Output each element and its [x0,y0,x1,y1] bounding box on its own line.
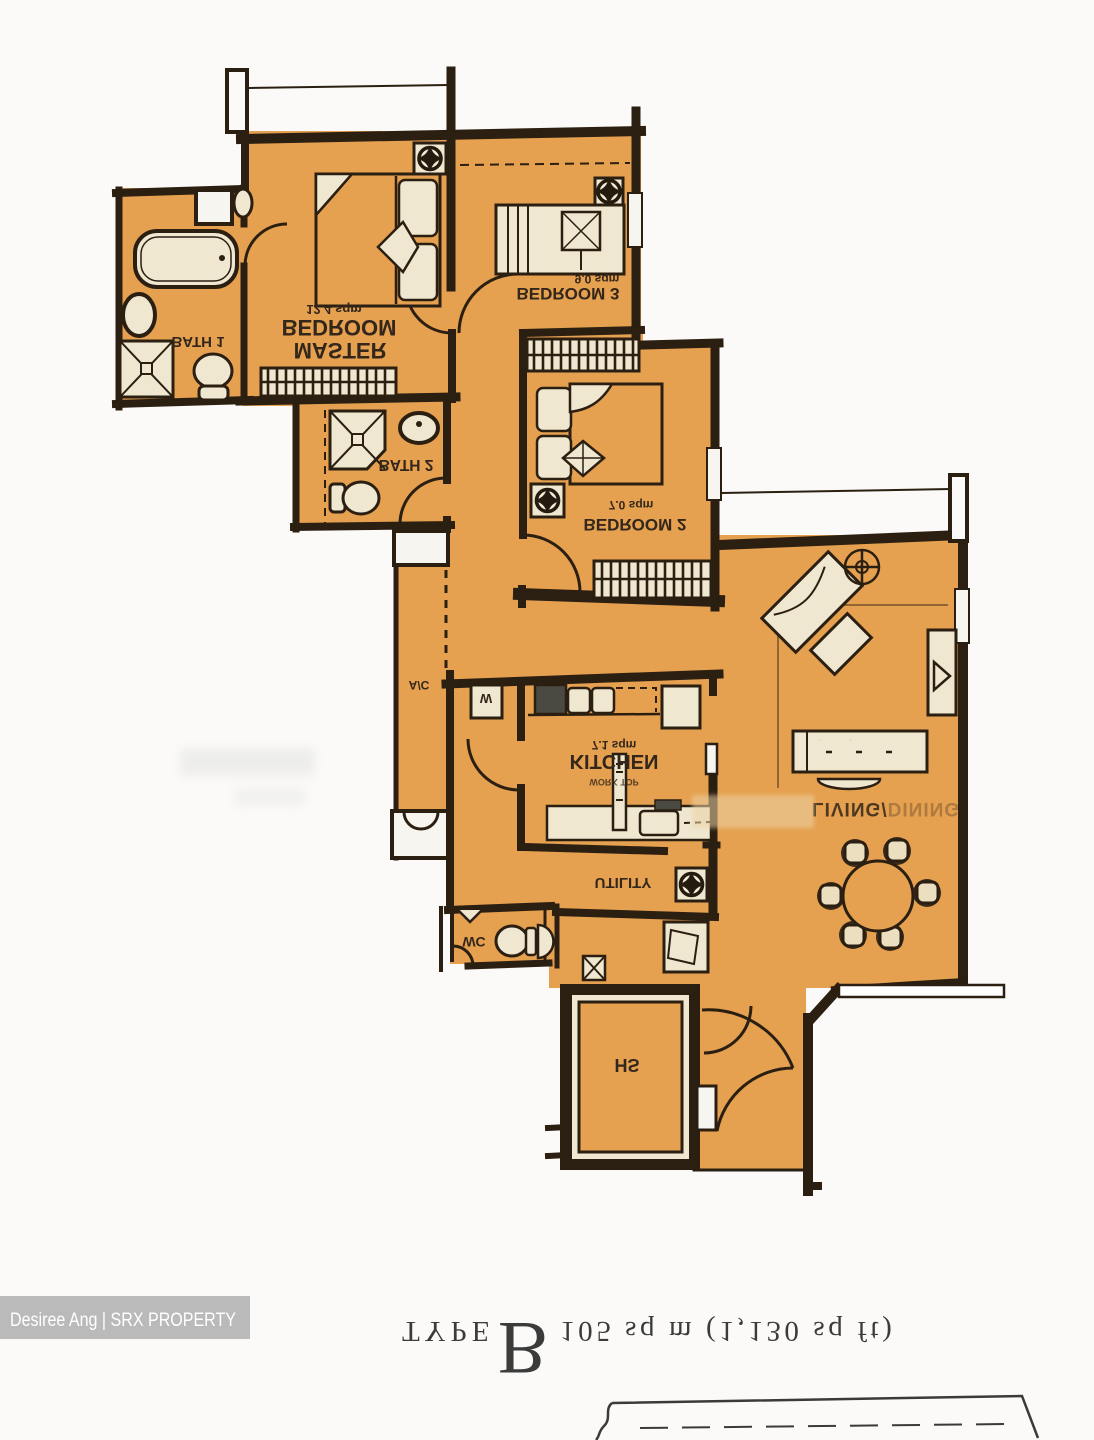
svg-text:9.0 sqm: 9.0 sqm [575,272,620,286]
svg-text:105 sq m (1,130 sq ft): 105 sq m (1,130 sq ft) [560,1315,895,1347]
svg-text:BATH 1: BATH 1 [171,333,224,350]
svg-text:MASTER: MASTER [294,338,387,363]
svg-text:WORK TOP: WORK TOP [589,777,638,787]
svg-text:HS: HS [614,1055,639,1075]
svg-text:UTILITY: UTILITY [595,874,652,891]
svg-text:B: B [498,1306,548,1389]
svg-text:A/C: A/C [409,678,430,692]
svg-text:WC: WC [462,934,485,950]
svg-text:Desiree Ang | SRX PROPERTY: Desiree Ang | SRX PROPERTY [10,1310,236,1331]
svg-text:BATH 2: BATH 2 [379,456,434,473]
svg-text:7.0 sqm: 7.0 sqm [609,498,654,512]
svg-text:BEDROOM 3: BEDROOM 3 [517,284,620,303]
svg-text:BEDROOM: BEDROOM [282,315,397,340]
svg-text:7.1 sqm: 7.1 sqm [592,738,637,752]
svg-text:BEDROOM 2: BEDROOM 2 [584,515,687,534]
svg-text:W: W [480,691,493,706]
svg-text:TYPE: TYPE [402,1315,495,1347]
svg-text:KITCHEN: KITCHEN [570,750,659,772]
svg-text:12.4 sqm: 12.4 sqm [306,302,362,317]
svg-text:LIVING/DINING: LIVING/DINING [812,798,960,819]
